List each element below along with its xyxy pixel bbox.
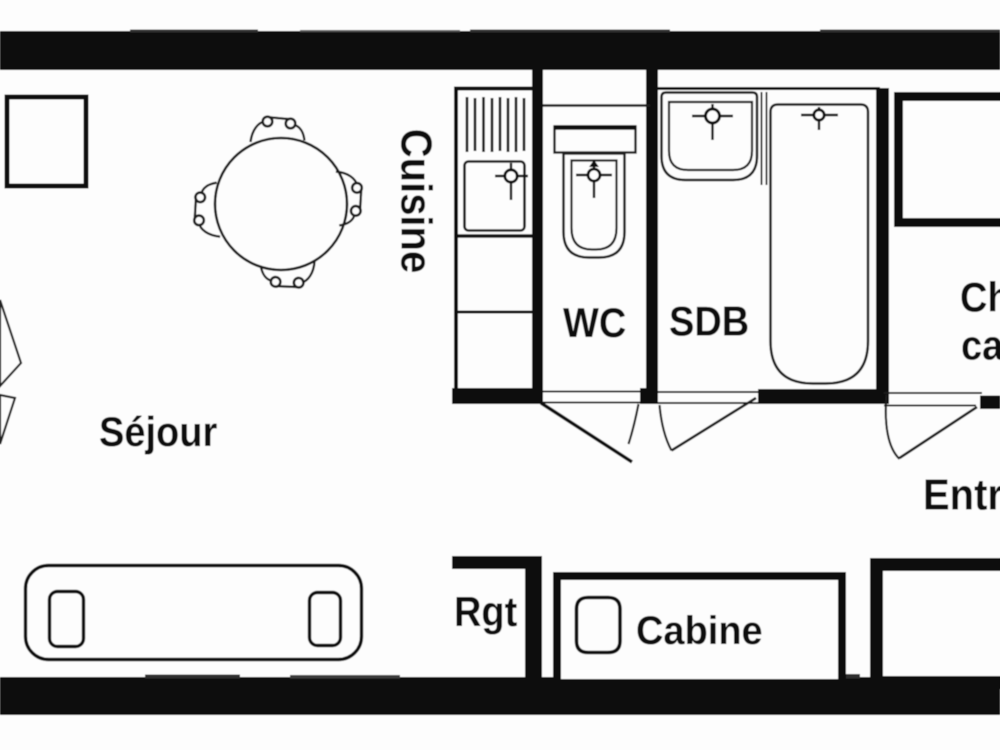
svg-text:Entrée: Entrée bbox=[923, 470, 1000, 519]
svg-text:Séjour: Séjour bbox=[99, 409, 217, 455]
svg-text:cabine: cabine bbox=[961, 323, 1000, 369]
svg-text:WC: WC bbox=[563, 300, 626, 346]
svg-text:SDB: SDB bbox=[669, 299, 749, 345]
svg-text:Cuisine: Cuisine bbox=[392, 129, 441, 273]
svg-text:Rgt: Rgt bbox=[454, 589, 517, 635]
svg-text:Cabine: Cabine bbox=[636, 609, 763, 653]
svg-text:Chambre: Chambre bbox=[960, 275, 1000, 321]
